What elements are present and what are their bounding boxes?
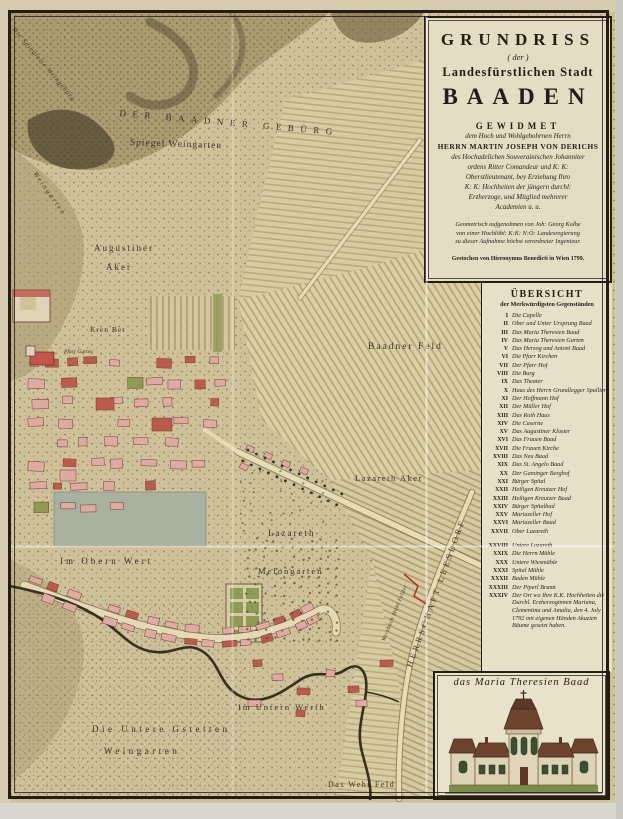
legend-panel: ÜBERSICHT der Merkwürdigsten Gegenstände… <box>481 283 612 672</box>
legend-label: Bürger Spitalbad <box>508 503 608 511</box>
title-city: BAADEN <box>426 84 610 110</box>
legend-entry: XXVMariazeller Hof <box>484 511 608 519</box>
legend-label: Untere Wiesmühle <box>508 559 608 567</box>
legend-entry: VIIDer Pfarr Hof <box>484 362 608 370</box>
legend-entry: XXIVBürger Spitalbad <box>484 503 608 511</box>
legend-numeral: XXIV <box>484 503 508 511</box>
legend-label: Die Capelle <box>508 312 608 320</box>
meadow <box>54 492 206 546</box>
title-der: ( der ) <box>426 52 610 62</box>
legend-numeral: XXX <box>484 559 508 567</box>
legend-label: Das St. Angelo Baad <box>508 461 608 469</box>
legend-entry: XVIIDie Frauen Kirche <box>484 445 608 453</box>
legend-numeral: XXXIII <box>484 584 508 592</box>
legend-entry: VDas Herzog und Antoni Baad <box>484 345 608 353</box>
legend-label: Die Burg <box>508 370 608 378</box>
legend-label: Bürger Spital <box>508 478 608 486</box>
legend-numeral: VIII <box>484 370 508 378</box>
legend-numeral: XXVI <box>484 519 508 527</box>
surveyor-text: Geometrisch aufgenohmen von Joh: Georg K… <box>426 221 610 247</box>
legend-numeral: XV <box>484 428 508 436</box>
legend-list: IDie CapelleIIOber und Unter Ursprung Ba… <box>482 312 612 630</box>
legend-numeral: XI <box>484 395 508 403</box>
legend-numeral: XXIX <box>484 550 508 558</box>
dedication-line: HERRN MARTIN JOSEPH VON DERICHS <box>426 141 610 152</box>
legend-entry: IXDas Theater <box>484 378 608 386</box>
legend-label: Das Maria Theresien Garten <box>508 337 608 345</box>
title-subtitle: Landesfürstlichen Stadt <box>426 65 610 80</box>
legend-label: Das Augustiner Kloster <box>508 428 608 436</box>
scan-backing-bottom <box>0 803 623 819</box>
legend-entry: IIIDas Maria Theresien Baad <box>484 329 608 337</box>
legend-numeral: XXXIV <box>484 592 508 600</box>
legend-entry: XXVIIIUntere Lazareth <box>484 542 608 550</box>
legend-entry: XVDas Augustiner Kloster <box>484 428 608 436</box>
legend-label: Ober Lazareth <box>508 528 608 536</box>
legend-label: Der Ort wo Ihre K.K. Hochheiten die Durc… <box>508 592 608 630</box>
dedication-line: K: K: Hochheiten der jüngern durchl: <box>426 182 610 192</box>
legend-label: Untere Lazareth <box>508 542 608 550</box>
legend-subtitle: der Merkwürdigsten Gegenständen <box>482 301 612 308</box>
scan-backing-right <box>616 0 623 819</box>
vignette-caption: das Maria Theresien Baad <box>435 677 608 688</box>
legend-entry: XXXIVDer Ort wo Ihre K.K. Hochheiten die… <box>484 592 608 630</box>
legend-label: Das Frauen Baad <box>508 436 608 444</box>
legend-entry: XXIXDie Herrn Mühle <box>484 550 608 558</box>
legend-numeral: XVII <box>484 445 508 453</box>
legend-label: Spital Mühle <box>508 567 608 575</box>
dedication-heading: GEWIDMET <box>426 121 610 131</box>
legend-entry: XIIDer Müller Hof <box>484 403 608 411</box>
legend-numeral: XIII <box>484 412 508 420</box>
legend-label: Heiligen Kreutzer Baad <box>508 495 608 503</box>
legend-entry: XIDer Hoffmann Hof <box>484 395 608 403</box>
legend-numeral: XX <box>484 470 508 478</box>
legend-label: Ober und Unter Ursprung Baad <box>508 320 608 328</box>
legend-numeral: XXXII <box>484 575 508 583</box>
legend-label: Die Herrn Mühle <box>508 550 608 558</box>
legend-entry: XXXIIIDer Piperl Brunn <box>484 584 608 592</box>
legend-numeral: XII <box>484 403 508 411</box>
legend-label: Haus des Herrn Grundlegger Spallier <box>508 387 608 395</box>
legend-numeral: X <box>484 387 508 395</box>
legend-label: Das Theater <box>508 378 608 386</box>
legend-label: Mariazeller Baad <box>508 519 608 527</box>
legend-label: Der Piperl Brunn <box>508 584 608 592</box>
surveyor-line: zu dieser Aufnahme höchst verordneter In… <box>426 238 610 247</box>
legend-label: Der Gaminger Berghof <box>508 470 608 478</box>
legend-numeral: XXVIII <box>484 542 508 550</box>
map-sheet: Die Spiegleite WeingebürgDER BAADNER GEB… <box>0 0 623 819</box>
legend-entry: XXVIIOber Lazareth <box>484 528 608 536</box>
theresienbad-elevation <box>435 689 612 802</box>
legend-entry: XVIIIDas Neu Baad <box>484 453 608 461</box>
surveyor-line: Geometrisch aufgenohmen von Joh: Georg K… <box>426 221 610 230</box>
legend-label: Baden Mühle <box>508 575 608 583</box>
legend-numeral: XIX <box>484 461 508 469</box>
legend-numeral: IV <box>484 337 508 345</box>
legend-label: Der Müller Hof <box>508 403 608 411</box>
dedication-line: ordens Ritter Comandeur und K: K: <box>426 162 610 172</box>
legend-entry: IIOber und Unter Ursprung Baad <box>484 320 608 328</box>
legend-numeral: VII <box>484 362 508 370</box>
legend-label: Die Caserne <box>508 420 608 428</box>
legend-label: Der Pfarr Hof <box>508 362 608 370</box>
legend-numeral: IX <box>484 378 508 386</box>
legend-entry: XIXDas St. Angelo Baad <box>484 461 608 469</box>
legend-entry: XXVIMariazeller Baad <box>484 519 608 527</box>
legend-numeral: VI <box>484 353 508 361</box>
dedication-line: Erzherzoge, und Mitglied mehrerer <box>426 192 610 202</box>
legend-numeral: XIV <box>484 420 508 428</box>
legend-entry: XXXIIBaden Mühle <box>484 575 608 583</box>
legend-numeral: XXII <box>484 486 508 494</box>
legend-numeral: XXI <box>484 478 508 486</box>
legend-entry: XXXISpital Mühle <box>484 567 608 575</box>
legend-numeral: XXXI <box>484 567 508 575</box>
legend-entry: XVIDas Frauen Baad <box>484 436 608 444</box>
legend-entry: VIDie Pfarr Kirchen <box>484 353 608 361</box>
legend-label: Die Pfarr Kirchen <box>508 353 608 361</box>
legend-entry: XXIBürger Spital <box>484 478 608 486</box>
legend-entry: XIIIDas Roth Haus <box>484 412 608 420</box>
legend-numeral: I <box>484 312 508 320</box>
legend-entry: VIIIDie Burg <box>484 370 608 378</box>
legend-entry: XXIIIHeiligen Kreutzer Baad <box>484 495 608 503</box>
legend-numeral: III <box>484 329 508 337</box>
legend-numeral: II <box>484 320 508 328</box>
legend-numeral: XXIII <box>484 495 508 503</box>
legend-entry: XXIIHeiligen Kreutzer Hof <box>484 486 608 494</box>
legend-title: ÜBERSICHT <box>482 289 612 300</box>
dedication-line: des Hochadelichen Souverainischen Johann… <box>426 152 610 162</box>
map-title: GRUNDRISS <box>426 30 610 50</box>
legend-entry: IVDas Maria Theresien Garten <box>484 337 608 345</box>
augustinian-monastery <box>13 290 50 322</box>
legend-entry: XXXUntere Wiesmühle <box>484 559 608 567</box>
surveyor-line: von einer Hochlöbl: K:K: N:Ö: Landesregi… <box>426 230 610 239</box>
title-cartouche: GRUNDRISS ( der ) Landesfürstlichen Stad… <box>424 16 612 283</box>
dedication-text: dem Hoch und Wohlgebohrnen HerrnHERRN MA… <box>426 131 610 212</box>
legend-label: Das Maria Theresien Baad <box>508 329 608 337</box>
engraver-line: Gestochen von Hieronymus Benedicti in Wi… <box>426 256 610 262</box>
dedication-line: dem Hoch und Wohlgebohrnen Herrn <box>426 131 610 141</box>
legend-numeral: XVI <box>484 436 508 444</box>
legend-label: Mariazeller Hof <box>508 511 608 519</box>
legend-label: Das Roth Haus <box>508 412 608 420</box>
legend-numeral: XVIII <box>484 453 508 461</box>
legend-label: Die Frauen Kirche <box>508 445 608 453</box>
legend-numeral: V <box>484 345 508 353</box>
vignette-box: das Maria Theresien Baad <box>433 671 610 800</box>
legend-label: Der Hoffmann Hof <box>508 395 608 403</box>
dedication-line: Oberstlieutenant, bey Erziehung Ihro <box>426 172 610 182</box>
legend-label: Das Neu Baad <box>508 453 608 461</box>
legend-label: Heiligen Kreutzer Hof <box>508 486 608 494</box>
legend-entry: XXDer Gaminger Berghof <box>484 470 608 478</box>
legend-numeral: XXV <box>484 511 508 519</box>
dedication-line: Academien u. u. <box>426 202 610 212</box>
legend-label: Das Herzog und Antoni Baad <box>508 345 608 353</box>
legend-entry: XHaus des Herrn Grundlegger Spallier <box>484 387 608 395</box>
legend-numeral: XXVII <box>484 528 508 536</box>
legend-entry: IDie Capelle <box>484 312 608 320</box>
legend-entry: XIVDie Caserne <box>484 420 608 428</box>
